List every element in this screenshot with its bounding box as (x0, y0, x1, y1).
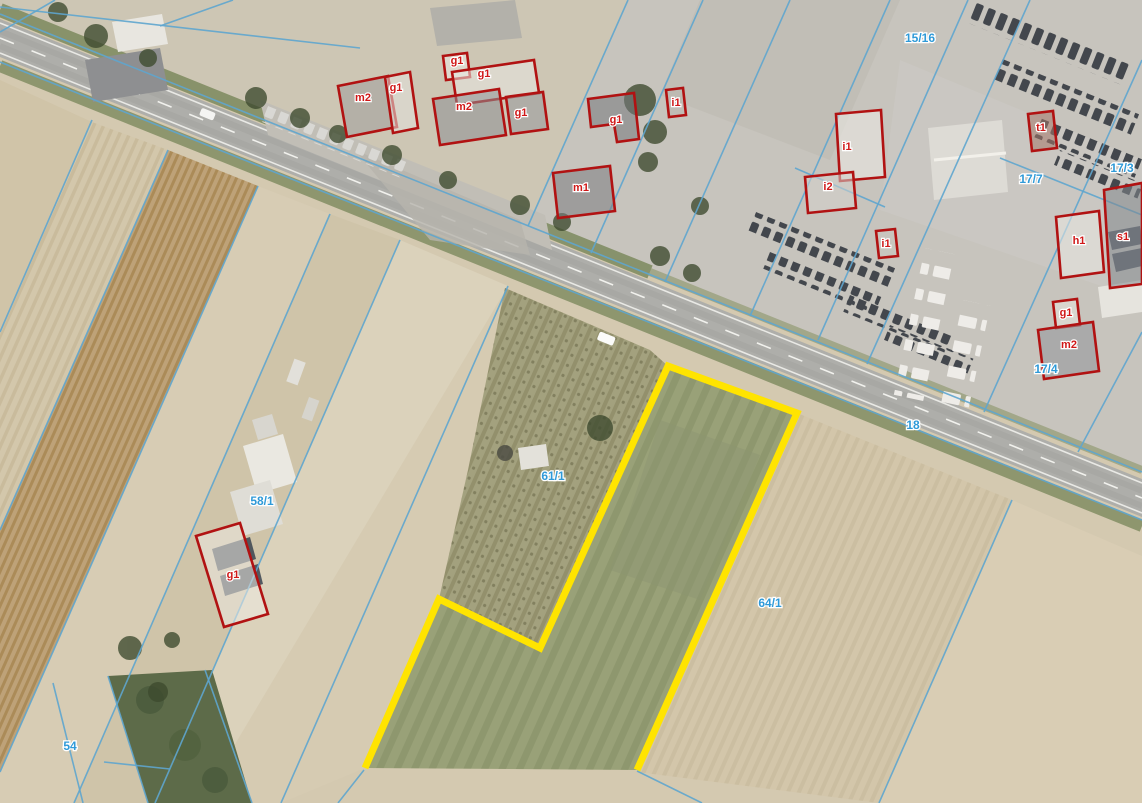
building-code-label: i2 (823, 181, 832, 193)
parcel-number-label: 58/1 (250, 494, 274, 508)
building-code-label: s1 (1117, 231, 1129, 243)
building-code-label: g1 (451, 55, 464, 67)
building-code-label: g1 (1060, 307, 1073, 319)
parcel-number-label: 64/1 (758, 596, 782, 610)
building-code-label: i1 (671, 97, 680, 109)
map-canvas[interactable]: m2g1g1g1m2g1g1m1i1i1i2i1t1h1s1g1m2g1 15/… (0, 0, 1142, 803)
parcel-number-label: 15/16 (905, 31, 935, 45)
parcel-number-label: 61/1 (541, 469, 565, 483)
parcel-number-label: 17/4 (1034, 362, 1058, 376)
building-code-label: i1 (881, 238, 890, 250)
building-code-label: t1 (1036, 122, 1046, 134)
building-code-label: g1 (515, 107, 528, 119)
parcel-number-label: 54 (63, 739, 77, 753)
building-code-label: m2 (355, 92, 371, 104)
aerial-base-layer (0, 0, 1142, 803)
parcel-number-label: 17/7 (1019, 172, 1043, 186)
building-code-label: g1 (478, 68, 491, 80)
building-code-label: h1 (1073, 235, 1086, 247)
building-code-label: g1 (390, 82, 403, 94)
building-code-label: g1 (227, 569, 240, 581)
building-code-label: m2 (456, 101, 472, 113)
parcel-number-label: 17/3 (1110, 161, 1134, 175)
building-outline (433, 89, 506, 145)
building-code-label: m2 (1061, 339, 1077, 351)
building-code-label: m1 (573, 182, 589, 194)
building-code-label: i1 (842, 141, 851, 153)
building-code-label: g1 (610, 114, 623, 126)
parcel-number-label: 18 (906, 418, 920, 432)
aerial-map: m2g1g1g1m2g1g1m1i1i1i2i1t1h1s1g1m2g1 15/… (0, 0, 1142, 803)
